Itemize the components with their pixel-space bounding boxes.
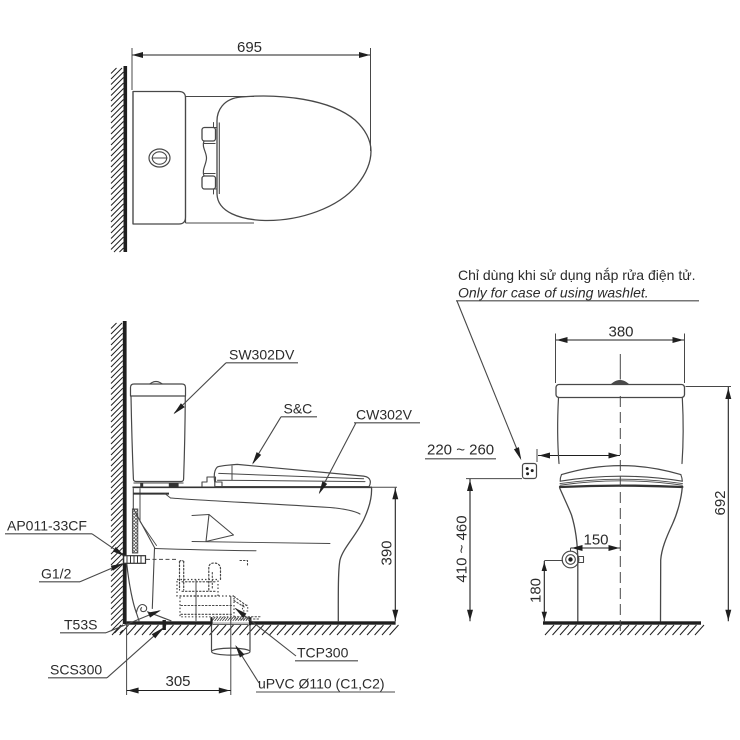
svg-text:SCS300: SCS300 — [50, 662, 102, 678]
svg-text:410 ~ 460: 410 ~ 460 — [454, 515, 471, 582]
svg-text:305: 305 — [165, 673, 190, 690]
svg-text:CW302V: CW302V — [356, 407, 413, 423]
svg-text:AP011-33CF: AP011-33CF — [7, 518, 87, 534]
svg-text:692: 692 — [712, 490, 729, 515]
svg-text:390: 390 — [379, 540, 396, 565]
svg-text:380: 380 — [608, 324, 633, 341]
svg-text:G1/2: G1/2 — [41, 566, 72, 582]
svg-text:695: 695 — [237, 39, 262, 56]
svg-text:TCP300: TCP300 — [297, 645, 349, 661]
svg-text:Only for case of using washlet: Only for case of using washlet. — [458, 285, 649, 301]
svg-text:150: 150 — [583, 532, 608, 549]
svg-text:S&C: S&C — [284, 401, 313, 417]
svg-text:220 ~ 260: 220 ~ 260 — [427, 442, 494, 459]
svg-text:T53S: T53S — [64, 617, 97, 633]
svg-text:Chỉ dùng khi sử dụng nắp rửa đ: Chỉ dùng khi sử dụng nắp rửa điện tử. — [458, 267, 695, 283]
svg-text:180: 180 — [528, 578, 545, 603]
svg-text:uPVC Ø110 (C1,C2): uPVC Ø110 (C1,C2) — [258, 676, 385, 692]
svg-text:SW302DV: SW302DV — [229, 347, 295, 363]
